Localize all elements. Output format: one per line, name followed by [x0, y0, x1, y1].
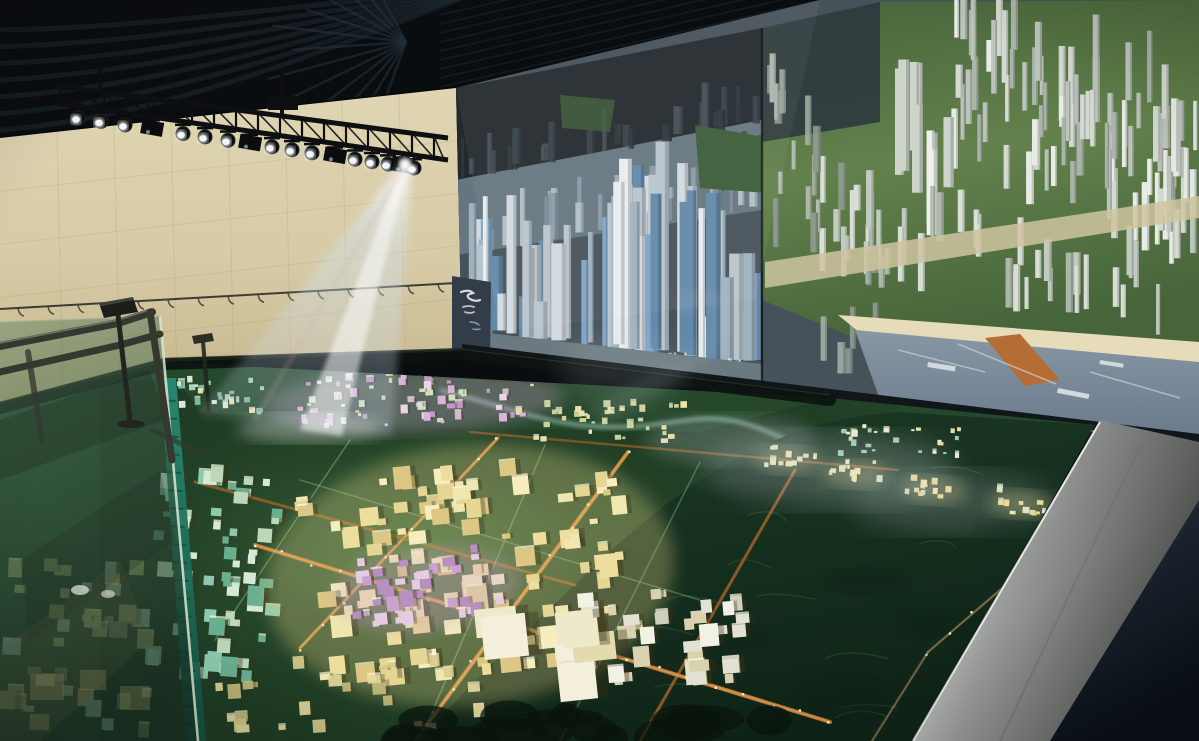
exhibition-hall-photo	[0, 0, 1199, 741]
vignette	[0, 0, 1199, 741]
scene-canvas	[0, 0, 1199, 741]
